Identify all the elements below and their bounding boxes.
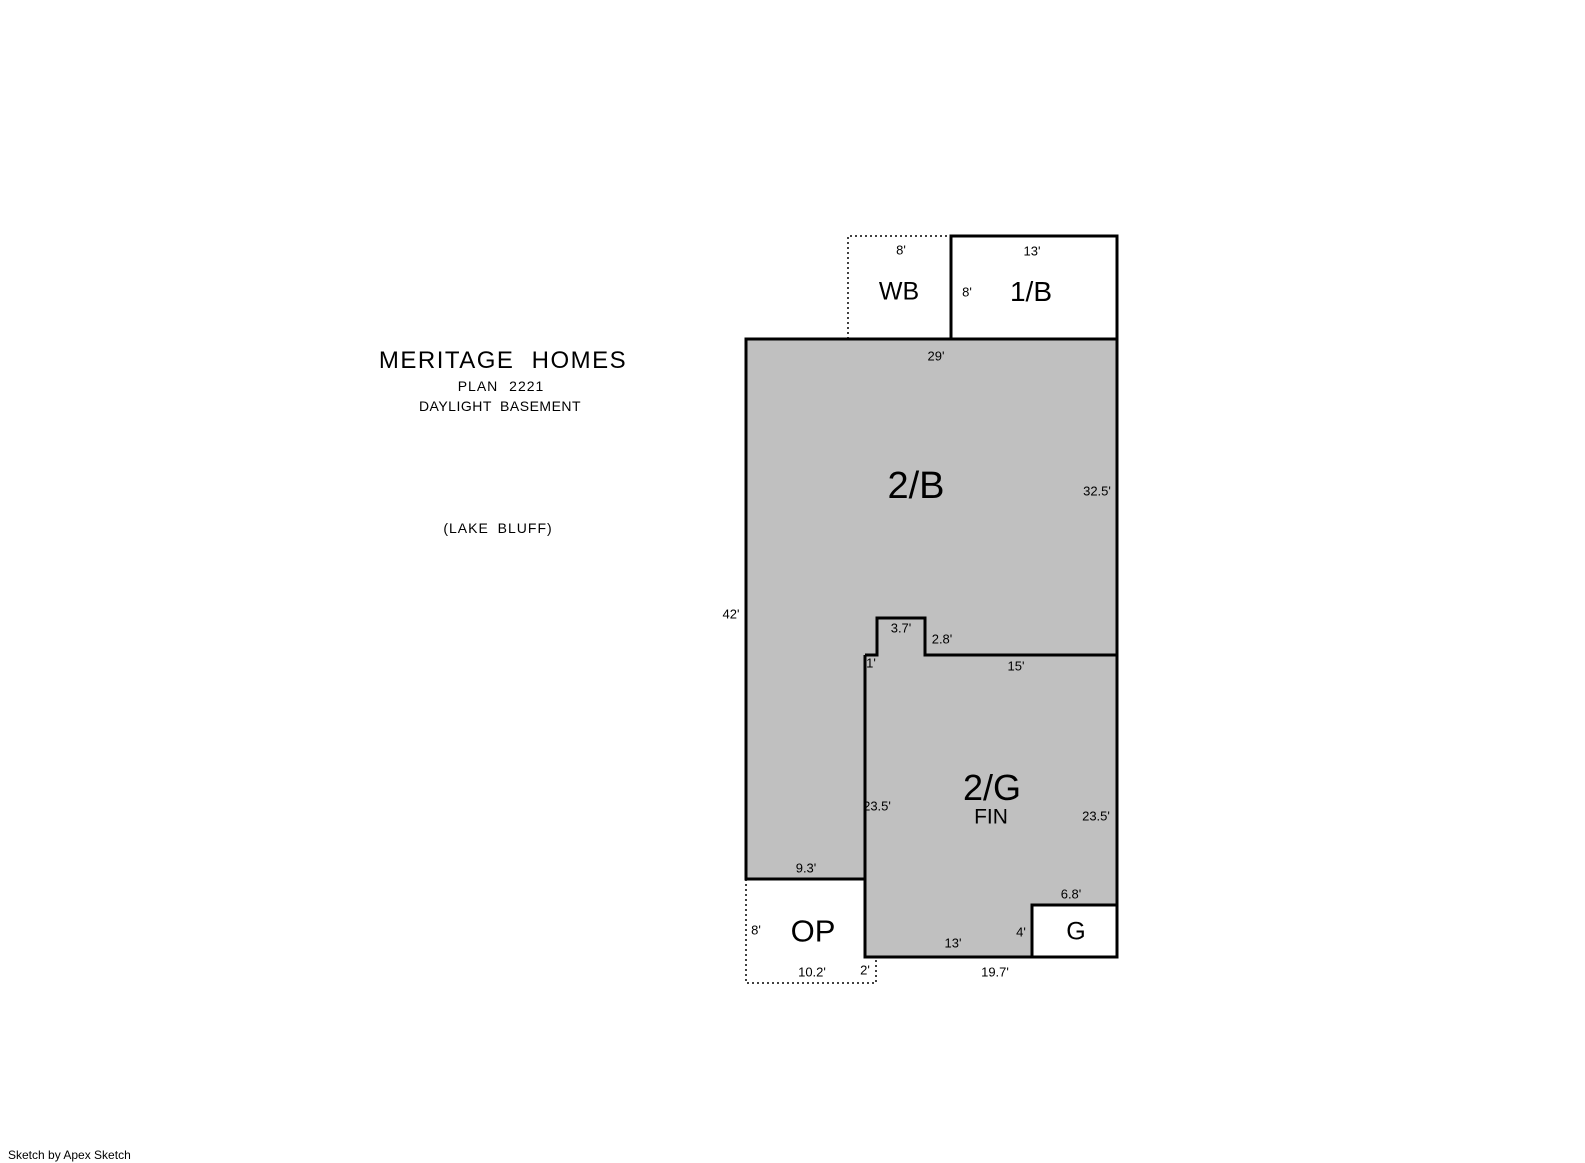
dim-notch-width: 3.7' [891,622,912,635]
dim-2b-right: 32.5' [1083,485,1111,498]
dim-op-left: 8' [751,924,761,937]
dim-g-left: 4' [1016,926,1026,939]
area-wb-label: WB [879,280,919,305]
dim-g-top: 6.8' [1061,888,1082,901]
dim-op-bottom: 10.2' [798,966,826,979]
dim-2g-bottom-total: 19.7' [981,966,1009,979]
dim-2b-top: 29' [928,350,945,363]
dim-wb-top: 8' [896,244,906,257]
title-company: MERITAGE HOMES [379,349,627,373]
dim-2b-bottom-left: 9.3' [796,862,817,875]
area-2b-label: 2/B [887,467,944,505]
sketch-page: MERITAGE HOMES PLAN 2221 DAYLIGHT BASEME… [0,0,1585,1163]
title-plan-number: PLAN 2221 [458,379,545,393]
area-g-label: G [1066,920,1085,945]
area-2g-label: 2/G [963,770,1021,806]
area-2g-fin-label: FIN [974,807,1008,828]
area-1b-label: 1/B [1010,278,1052,306]
dim-1b-top: 13' [1024,245,1041,258]
sketch-credit: Sketch by Apex Sketch [8,1148,131,1162]
floorplan-canvas [0,0,1585,1163]
dim-1b-left: 8' [962,286,972,299]
dim-2g-bottom: 13' [945,937,962,950]
dim-notch-step: 1' [866,657,876,670]
area-op-label: OP [791,916,836,947]
dim-2b-left: 42' [723,608,740,621]
title-community-note: (LAKE BLUFF) [443,521,552,535]
dim-2g-right: 23.5' [1082,810,1110,823]
dim-op-right: 2' [860,964,870,977]
dim-2g-left: 23.5' [863,800,891,813]
dim-2b-bottom-right: 15' [1008,660,1025,673]
title-basement-type: DAYLIGHT BASEMENT [419,399,581,413]
dim-notch-height: 2.8' [932,633,953,646]
